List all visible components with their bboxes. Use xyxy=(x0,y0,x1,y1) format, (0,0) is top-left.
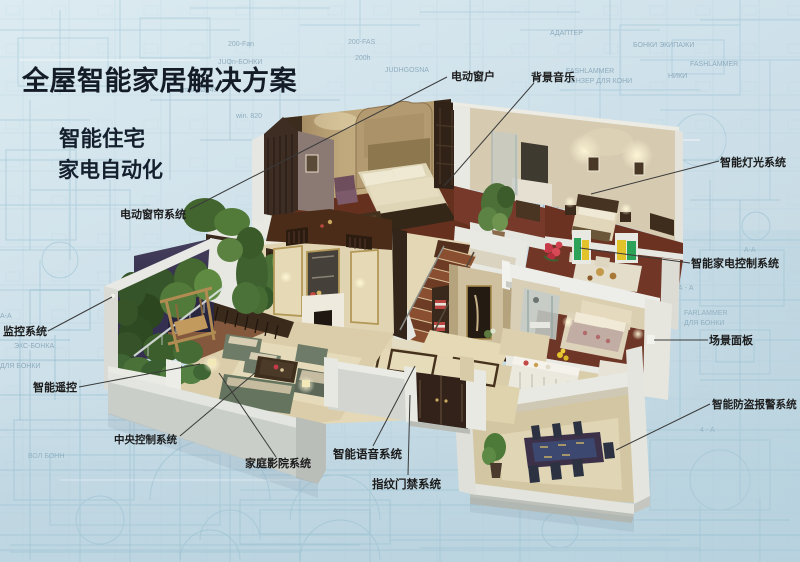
svg-text:200h: 200h xyxy=(355,55,371,62)
svg-text:智能家电控制系统: 智能家电控制系统 xyxy=(691,256,779,270)
svg-text:НИКИ: НИКИ xyxy=(668,73,687,80)
svg-text:中央控制系统: 中央控制系统 xyxy=(114,433,177,446)
svg-text:指纹门禁系统: 指纹门禁系统 xyxy=(372,477,441,491)
svg-text:智能防盗报警系统: 智能防盗报警系统 xyxy=(712,398,797,411)
svg-text:全屋智能家居解决方案: 全屋智能家居解决方案 xyxy=(21,65,297,96)
svg-text:БОНКИ ЭКИПАЖИ: БОНКИ ЭКИПАЖИ xyxy=(633,42,694,49)
svg-text:win. 820: win. 820 xyxy=(235,113,262,120)
svg-text:家电自动化: 家电自动化 xyxy=(58,158,163,182)
svg-text:智能语音系统: 智能语音系统 xyxy=(333,447,402,461)
svg-text:200-FAS: 200-FAS xyxy=(348,39,376,46)
svg-text:电动窗帘系统: 电动窗帘系统 xyxy=(120,207,186,221)
svg-text:JUDHGOSNA: JUDHGOSNA xyxy=(385,67,429,74)
svg-text:FASHLAMMER: FASHLAMMER xyxy=(690,61,738,68)
svg-text:电动窗户: 电动窗户 xyxy=(451,69,495,83)
svg-text:智能住宅: 智能住宅 xyxy=(59,126,145,151)
svg-text:智能遥控: 智能遥控 xyxy=(33,380,77,394)
svg-text:200-Fan: 200-Fan xyxy=(228,41,254,48)
svg-text:А-А: А-А xyxy=(0,313,12,320)
svg-text:JUOn-БОНКИ: JUOn-БОНКИ xyxy=(218,59,262,66)
svg-text:监控系统: 监控系统 xyxy=(3,324,47,338)
svg-text:场景面板: 场景面板 xyxy=(709,333,754,347)
svg-text:背景音乐: 背景音乐 xyxy=(531,70,575,84)
svg-text:智能灯光系统: 智能灯光系统 xyxy=(720,155,786,169)
svg-text:АДАПТЕР: АДАПТЕР xyxy=(550,30,583,37)
svg-text:СЕНЗЕР ДЛЯ КОНИ: СЕНЗЕР ДЛЯ КОНИ xyxy=(566,78,632,85)
svg-text:家庭影院系统: 家庭影院系统 xyxy=(245,456,311,470)
